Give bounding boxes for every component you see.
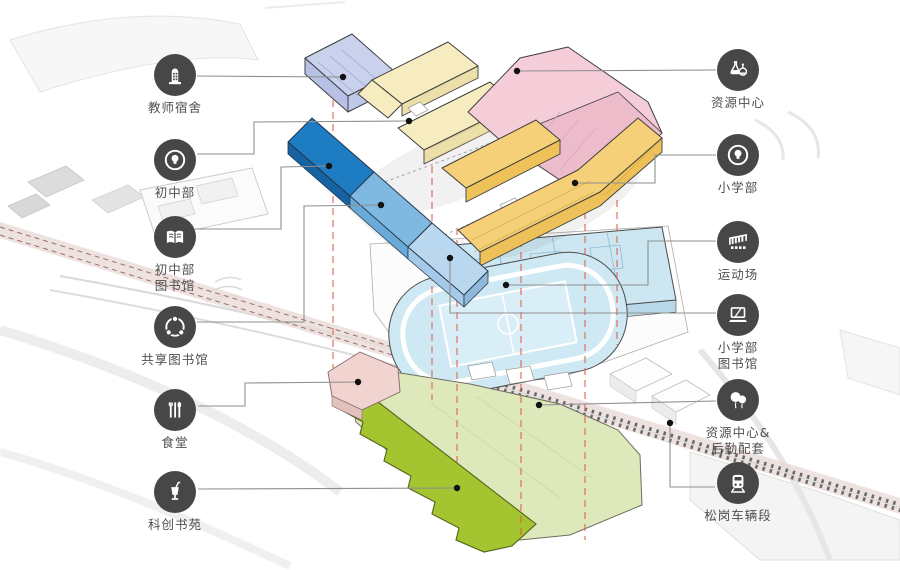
legend-item-junior-high: 初中部 xyxy=(154,139,196,181)
share-network-icon xyxy=(154,306,196,348)
cup-straw-icon xyxy=(154,471,196,513)
legend-item-songgang-depot: 松岗车辆段 xyxy=(717,462,759,504)
legend-item-junior-high-library: 初中部 图书馆 xyxy=(154,216,196,258)
legend-label: 食堂 xyxy=(115,435,235,451)
legend-item-science-book-garden: 科创书苑 xyxy=(154,471,196,513)
legend-item-shared-library: 共享图书馆 xyxy=(154,306,196,348)
legend-label: 小学部 xyxy=(678,180,798,196)
legend-item-primary-school: 小学部 xyxy=(717,134,759,176)
laptop-icon xyxy=(717,294,759,336)
legend-item-resource-center: 资源中心 xyxy=(717,49,759,91)
legend-item-canteen: 食堂 xyxy=(154,389,196,431)
legend-item-sports-field: 运动场 xyxy=(717,221,759,263)
legend-item-teacher-dorm: 教师宿舍 xyxy=(154,54,196,96)
legend-label: 科创书苑 xyxy=(115,517,235,533)
cutlery-icon xyxy=(154,389,196,431)
legend-label: 初中部 图书馆 xyxy=(115,262,235,295)
train-icon xyxy=(717,462,759,504)
legend-label: 资源中心& 后勤配套 xyxy=(678,425,798,458)
open-book-icon xyxy=(154,216,196,258)
idea-bulb-icon xyxy=(154,139,196,181)
legend-label: 运动场 xyxy=(678,267,798,283)
flasks-icon xyxy=(717,49,759,91)
legend-label: 初中部 xyxy=(115,185,235,201)
grandstand-icon xyxy=(717,221,759,263)
legend-label: 教师宿舍 xyxy=(115,100,235,116)
legend-label: 共享图书馆 xyxy=(115,352,235,368)
legend-item-primary-library: 小学部 图书馆 xyxy=(717,294,759,336)
dorm-building-icon xyxy=(154,54,196,96)
balloons-icon xyxy=(717,379,759,421)
legend-label: 小学部 图书馆 xyxy=(678,340,798,373)
legend-item-resource-logistics: 资源中心& 后勤配套 xyxy=(717,379,759,421)
legend-label: 资源中心 xyxy=(678,95,798,111)
campus-axonometric-diagram: 教师宿舍 初中部 初中部 图书馆 共享图书馆 xyxy=(0,0,900,570)
idea-bulb-icon xyxy=(717,134,759,176)
legend-label: 松岗车辆段 xyxy=(678,508,798,524)
